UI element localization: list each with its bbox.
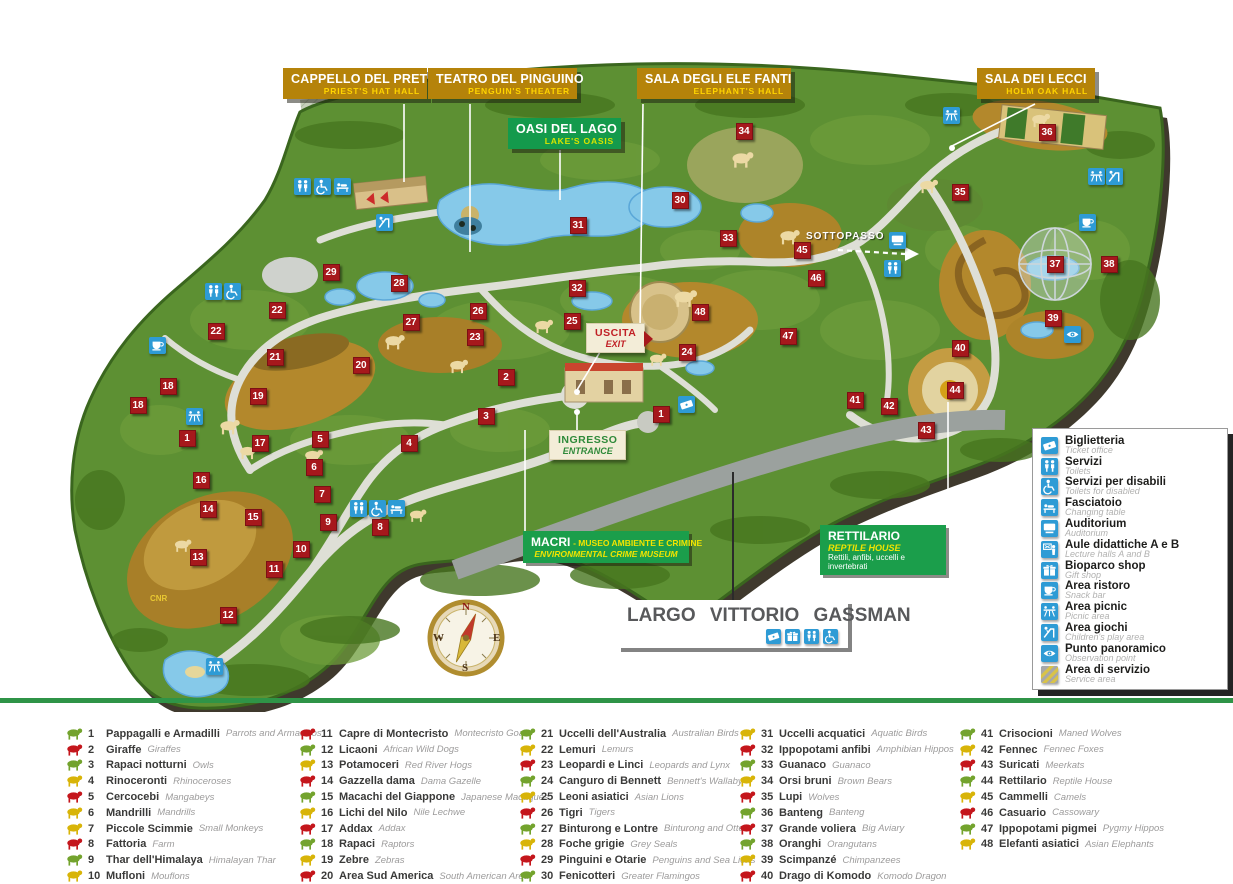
animal-number: 38	[761, 838, 779, 850]
animal-silhouette-icon	[297, 774, 321, 788]
animal-silhouette-icon	[297, 743, 321, 757]
animal-name-en: Chimpanzees	[836, 855, 900, 866]
animal-number: 13	[321, 759, 339, 771]
animal-number: 23	[541, 759, 559, 771]
animal-name-en: Himalayan Thar	[203, 855, 276, 866]
animal-name-it: Orsi bruni	[779, 775, 832, 787]
animal-name-en: South American Area	[433, 871, 529, 882]
animal-number: 30	[541, 870, 559, 882]
map-marker-21: 21	[267, 349, 284, 366]
legend-row-restaurant: Area ristoroSnack bar	[1041, 581, 1221, 602]
animal-name-it: Lupi	[779, 791, 802, 803]
compass-rose: N E S W	[427, 599, 505, 677]
animal-name-en: Brown Bears	[832, 776, 892, 787]
animal-number: 11	[321, 728, 339, 740]
playground-icon	[1106, 168, 1123, 185]
map-marker-35: 35	[952, 184, 969, 201]
toilets-icon	[804, 629, 819, 644]
animal-name-it: Mandrilli	[106, 807, 151, 819]
animal-legend-item-31: 31Uccelli acquaticiAquatic Birds	[737, 726, 954, 742]
animal-name-it: Piccole Scimmie	[106, 823, 193, 835]
hall-label-subtitle: PENGUIN'S THEATER	[436, 86, 570, 96]
animal-name-it: Rinoceronti	[106, 775, 167, 787]
animal-name-it: Fenicotteri	[559, 870, 615, 882]
animal-name-en: Reptile House	[1047, 776, 1113, 787]
animal-name-en: Dama Gazelle	[415, 776, 481, 787]
animal-name-en: Zebras	[369, 855, 405, 866]
animal-legend-item-8: 8FattoriaFarm	[64, 837, 322, 853]
animal-name-it: Fennec	[999, 744, 1038, 756]
animal-name-it: Rapaci notturni	[106, 759, 187, 771]
animal-number: 5	[88, 791, 106, 803]
animal-silhouette-icon	[517, 758, 541, 772]
picnic-icon	[1088, 168, 1105, 185]
compass-north: N	[462, 601, 470, 613]
animal-legend-item-13: 13PotamoceriRed River Hogs	[297, 758, 549, 774]
animal-silhouette-icon	[64, 869, 88, 883]
hall-label-subtitle: PRIEST'S HAT HALL	[291, 86, 420, 96]
map-marker-13: 13	[190, 549, 207, 566]
legend-name-en: Ticket office	[1065, 446, 1124, 455]
map-marker-42: 42	[881, 398, 898, 415]
animal-legend-item-34: 34Orsi bruniBrown Bears	[737, 773, 954, 789]
rettilario-desc: Rettili, anfibi, uccelli e invertebrati	[828, 553, 938, 571]
animal-legend-item-42: 42FennecFennec Foxes	[957, 742, 1164, 758]
animal-legend-item-11: 11Capre di MontecristoMontecristo Goats	[297, 726, 549, 742]
animal-name-it: Uccelli dell'Australia	[559, 728, 666, 740]
animal-name-en: Aquatic Birds	[865, 728, 927, 739]
map-marker-12: 12	[220, 607, 237, 624]
map-marker-43: 43	[918, 422, 935, 439]
animal-number: 20	[321, 870, 339, 882]
map-marker-24: 24	[679, 344, 696, 361]
animal-silhouette-icon	[517, 822, 541, 836]
animal-name-it: Macachi del Giappone	[339, 791, 455, 803]
animal-legend-item-39: 39ScimpanzéChimpanzees	[737, 852, 954, 868]
rettilario-subtitle: REPTILE HOUSE	[828, 543, 938, 553]
animal-silhouette-icon	[64, 743, 88, 757]
changing-icon	[334, 178, 351, 195]
map-marker-15: 15	[245, 509, 262, 526]
animal-silhouette-icon	[957, 758, 981, 772]
animal-legend-item-29: 29Pinguini e OtariePenguins and Sea Lion…	[517, 852, 755, 868]
legend-divider	[0, 698, 1233, 703]
animal-legend-item-20: 20Area Sud AmericaSouth American Area	[297, 868, 549, 884]
animal-number: 6	[88, 807, 106, 819]
animal-silhouette-icon	[737, 790, 761, 804]
map-marker-1: 1	[179, 430, 196, 447]
animal-legend-column-5: 41CrisocioniManed Wolves42FennecFennec F…	[957, 726, 1164, 852]
shop-icon	[785, 629, 800, 644]
animal-legend-item-47: 47Ippopotami pigmeiPygmy Hippos	[957, 821, 1164, 837]
animal-silhouette-icon	[957, 822, 981, 836]
animal-silhouette-icon	[297, 806, 321, 820]
hall-label-title: CAPPELLO DEL PRETE	[291, 72, 420, 86]
animal-number: 34	[761, 775, 779, 787]
animal-name-en: Mangabeys	[159, 792, 214, 803]
animal-legend-item-44: 44RettilarioReptile House	[957, 773, 1164, 789]
animal-name-en: Lemurs	[596, 744, 634, 755]
service-icon	[1041, 666, 1058, 683]
playground-icon	[376, 214, 393, 231]
animal-name-it: Ippopotami anfibi	[779, 744, 871, 756]
animal-silhouette-icon	[64, 790, 88, 804]
macri-subtitle-en: ENVIRONMENTAL CRIME MUSEUM	[531, 549, 681, 559]
hall-label-sala-degli-elefanti: SALA DEGLI ELE FANTIELEPHANT'S HALL	[637, 68, 791, 99]
disabled-icon	[823, 629, 838, 644]
animal-name-it: Crisocioni	[999, 728, 1053, 740]
animal-legend-item-10: 10MufloniMouflons	[64, 868, 322, 884]
lecture-icon	[1041, 541, 1058, 558]
animal-name-it: Leoni asiatici	[559, 791, 629, 803]
legend-name-en: Children's play area	[1065, 633, 1144, 642]
legend-row-playground: Area giochiChildren's play area	[1041, 622, 1221, 643]
animal-silhouette-icon	[517, 853, 541, 867]
macri-title: MACRI	[531, 535, 570, 549]
animal-name-it: Giraffe	[106, 744, 141, 756]
animal-silhouette-icon	[957, 774, 981, 788]
animal-legend-item-45: 45CammelliCamels	[957, 789, 1164, 805]
animal-name-it: Potamoceri	[339, 759, 399, 771]
legend-name-en: Snack bar	[1065, 591, 1130, 600]
entrance-title: INGRESSO	[558, 434, 617, 446]
legend-row-toilets: ServiziToilets	[1041, 456, 1221, 477]
animal-name-en: Owls	[187, 760, 214, 771]
map-marker-32: 32	[569, 280, 586, 297]
map-marker-39: 39	[1045, 310, 1062, 327]
animal-name-en: Big Aviary	[856, 823, 904, 834]
auditorium-icon	[1041, 520, 1058, 537]
animal-name-en: Guanaco	[826, 760, 871, 771]
hall-label-subtitle: HOLM OAK HALL	[985, 86, 1088, 96]
legend-name-en: Observation point	[1065, 654, 1166, 663]
animal-silhouette-icon	[957, 790, 981, 804]
animal-name-en: Giraffes	[141, 744, 180, 755]
animal-name-en: Pygmy Hippos	[1097, 823, 1164, 834]
animal-number: 8	[88, 838, 106, 850]
animal-name-it: Uccelli acquatici	[779, 728, 865, 740]
restaurant-icon	[1079, 214, 1096, 231]
animal-number: 29	[541, 854, 559, 866]
animal-legend-item-2: 2GiraffeGiraffes	[64, 742, 322, 758]
animal-legend-item-17: 17AddaxAddax	[297, 821, 549, 837]
animal-number: 44	[981, 775, 999, 787]
animal-name-it: Thar dell'Himalaya	[106, 854, 203, 866]
animal-number: 18	[321, 838, 339, 850]
animal-number: 46	[981, 807, 999, 819]
map-marker-38: 38	[1101, 256, 1118, 273]
animal-silhouette-icon	[737, 774, 761, 788]
animal-silhouette-icon	[737, 743, 761, 757]
map-marker-45: 45	[794, 242, 811, 259]
hall-label-title: SALA DEGLI ELE FANTI	[645, 72, 784, 86]
animal-number: 41	[981, 728, 999, 740]
playground-icon	[1041, 624, 1058, 641]
animal-name-it: Canguro di Bennett	[559, 775, 661, 787]
compass-west: W	[433, 632, 444, 644]
picnic-icon	[206, 658, 223, 675]
largo-title: LARGO VITTORIO GASSMAN	[627, 605, 838, 627]
legend-name-en: Changing table	[1065, 508, 1126, 517]
animal-legend-item-36: 36BantengBanteng	[737, 805, 954, 821]
zoo-map-page: CAPPELLO DEL PRETEPRIEST'S HAT HALLTEATR…	[0, 0, 1233, 884]
animal-number: 7	[88, 823, 106, 835]
animal-legend-item-33: 33GuanacoGuanaco	[737, 758, 954, 774]
hall-label-title: TEATRO DEL PINGUINO	[436, 72, 570, 86]
animal-silhouette-icon	[517, 790, 541, 804]
animal-number: 25	[541, 791, 559, 803]
animal-name-it: Zebre	[339, 854, 369, 866]
map-marker-37: 37	[1047, 256, 1064, 273]
toilets-icon	[294, 178, 311, 195]
animal-number: 42	[981, 744, 999, 756]
animal-name-it: Gazzella dama	[339, 775, 415, 787]
animal-silhouette-icon	[517, 727, 541, 741]
animal-name-it: Tigri	[559, 807, 583, 819]
legend-row-lecture: Aule didattiche A e BLecture halls A and…	[1041, 539, 1221, 560]
animal-name-it: Binturong e Lontre	[559, 823, 658, 835]
map-marker-17: 17	[252, 435, 269, 452]
animal-legend-item-28: 28Foche grigieGrey Seals	[517, 837, 755, 853]
animal-silhouette-icon	[297, 790, 321, 804]
macri-museum-label: MACRI - MUSEO AMBIENTE E CRIMINE ENVIRON…	[523, 531, 689, 563]
animal-name-it: Pinguini e Otarie	[559, 854, 646, 866]
disabled-icon	[224, 283, 241, 300]
animal-name-en: Tigers	[583, 807, 615, 818]
panoramic-icon	[1064, 326, 1081, 343]
animal-silhouette-icon	[957, 727, 981, 741]
animal-legend-item-40: 40Drago di KomodoKomodo Dragon	[737, 868, 954, 884]
animal-name-en: Leopards and Lynx	[643, 760, 730, 771]
map-marker-31: 31	[570, 217, 587, 234]
animal-number: 26	[541, 807, 559, 819]
legend-row-auditorium: AuditoriumAuditorium	[1041, 518, 1221, 539]
animal-name-it: Licaoni	[339, 744, 378, 756]
hall-label-subtitle: LAKE'S OASIS	[516, 136, 614, 146]
animal-name-en: Grey Seals	[624, 839, 677, 850]
animal-number: 27	[541, 823, 559, 835]
shop-icon	[1041, 562, 1058, 579]
animal-name-it: Fattoria	[106, 838, 146, 850]
map-marker-44: 44	[947, 382, 964, 399]
animal-legend-item-43: 43SuricatiMeerkats	[957, 758, 1164, 774]
animal-number: 47	[981, 823, 999, 835]
legend-name-en: Service area	[1065, 675, 1150, 684]
map-marker-46: 46	[808, 270, 825, 287]
animal-silhouette-icon	[737, 806, 761, 820]
animal-silhouette-icon	[297, 869, 321, 883]
animal-name-en: Bennett's Wallaby	[661, 776, 743, 787]
panoramic-icon	[1041, 645, 1058, 662]
ticket-icon	[1041, 437, 1058, 454]
map-marker-18: 18	[130, 397, 147, 414]
animal-number: 28	[541, 838, 559, 850]
exit-sign: USCITA EXIT	[586, 323, 645, 353]
hall-label-cappello-del-prete: CAPPELLO DEL PRETEPRIEST'S HAT HALL	[283, 68, 427, 99]
animal-silhouette-icon	[297, 837, 321, 851]
hall-label-sala-dei-lecci: SALA DEI LECCIHOLM OAK HALL	[977, 68, 1095, 99]
facilities-legend-panel: BiglietteriaTicket officeServiziToiletsS…	[1032, 428, 1228, 690]
animal-name-it: Scimpanzé	[779, 854, 836, 866]
animal-legend-item-15: 15Macachi del GiapponeJapanese Macaques	[297, 789, 549, 805]
animal-number: 15	[321, 791, 339, 803]
largo-icons	[627, 629, 838, 644]
auditorium-icon	[889, 232, 906, 249]
disabled-icon	[314, 178, 331, 195]
exit-title: USCITA	[595, 327, 636, 339]
animal-name-it: Rapaci	[339, 838, 375, 850]
picnic-icon	[1041, 603, 1058, 620]
toilets-icon	[205, 283, 222, 300]
map-marker-1: 1	[653, 406, 670, 423]
animal-number: 48	[981, 838, 999, 850]
animal-number: 36	[761, 807, 779, 819]
legend-name-en: Lecture halls A and B	[1065, 550, 1179, 559]
animal-number: 3	[88, 759, 106, 771]
map-marker-41: 41	[847, 392, 864, 409]
animal-name-en: African Wild Dogs	[378, 744, 459, 755]
legend-row-service: Area di servizioService area	[1041, 664, 1221, 685]
rettilario-title: RETTILARIO	[828, 529, 938, 543]
animal-legend-item-7: 7Piccole ScimmieSmall Monkeys	[64, 821, 322, 837]
animal-name-it: Oranghi	[779, 838, 821, 850]
legend-row-panoramic: Punto panoramicoObservation point	[1041, 643, 1221, 664]
map-marker-4: 4	[401, 435, 418, 452]
animal-legend-column-2: 11Capre di MontecristoMontecristo Goats1…	[297, 726, 549, 884]
animal-name-it: Cercocebi	[106, 791, 159, 803]
animal-name-it: Rettilario	[999, 775, 1047, 787]
animal-silhouette-icon	[737, 758, 761, 772]
largo-gassman-sign: LARGO VITTORIO GASSMAN	[617, 600, 848, 648]
macri-subtitle-it: - MUSEO AMBIENTE E CRIMINE	[573, 538, 702, 548]
animal-legend-item-22: 22LemuriLemurs	[517, 742, 755, 758]
map-marker-14: 14	[200, 501, 217, 518]
animal-name-it: Banteng	[779, 807, 823, 819]
animal-number: 32	[761, 744, 779, 756]
legend-row-ticket: BiglietteriaTicket office	[1041, 435, 1221, 456]
map-marker-28: 28	[391, 275, 408, 292]
animal-number: 24	[541, 775, 559, 787]
legend-row-picnic: Area picnicPicnic area	[1041, 601, 1221, 622]
legend-row-shop: Bioparco shopGift shop	[1041, 560, 1221, 581]
animal-silhouette-icon	[297, 822, 321, 836]
map-marker-29: 29	[323, 264, 340, 281]
animal-legend-item-21: 21Uccelli dell'AustraliaAustralian Birds	[517, 726, 755, 742]
animal-legend-item-41: 41CrisocioniManed Wolves	[957, 726, 1164, 742]
ticket-icon	[678, 396, 695, 413]
animal-legend-item-12: 12LicaoniAfrican Wild Dogs	[297, 742, 549, 758]
map-marker-2: 2	[498, 369, 515, 386]
hall-label-title: OASI DEL LAGO	[516, 122, 614, 136]
map-marker-11: 11	[266, 561, 283, 578]
picnic-icon	[186, 408, 203, 425]
animal-number: 37	[761, 823, 779, 835]
map-marker-26: 26	[470, 303, 487, 320]
animal-number: 2	[88, 744, 106, 756]
map-marker-34: 34	[736, 123, 753, 140]
animal-legend-item-1: 1Pappagalli e ArmadilliParrots and Armad…	[64, 726, 322, 742]
animal-legend-item-5: 5CercocebiMangabeys	[64, 789, 322, 805]
animal-silhouette-icon	[737, 837, 761, 851]
legend-name-en: Toilets	[1065, 467, 1102, 476]
disabled-icon	[369, 500, 386, 517]
animal-silhouette-icon	[737, 853, 761, 867]
animal-number: 9	[88, 854, 106, 866]
animal-legend-item-46: 46CasuarioCassowary	[957, 805, 1164, 821]
animal-name-en: Fennec Foxes	[1038, 744, 1104, 755]
animal-name-it: Mufloni	[106, 870, 145, 882]
map-marker-23: 23	[467, 329, 484, 346]
animal-name-en: Orangutans	[821, 839, 877, 850]
map-marker-16: 16	[193, 472, 210, 489]
animal-number: 22	[541, 744, 559, 756]
animal-legend-column-3: 21Uccelli dell'AustraliaAustralian Birds…	[517, 726, 755, 884]
animal-silhouette-icon	[64, 806, 88, 820]
animal-name-en: Raptors	[375, 839, 414, 850]
legend-row-changing: FasciatoioChanging table	[1041, 497, 1221, 518]
animal-name-it: Capre di Montecristo	[339, 728, 448, 740]
animal-silhouette-icon	[297, 727, 321, 741]
animal-number: 40	[761, 870, 779, 882]
animal-name-en: Asian Elephants	[1079, 839, 1154, 850]
compass-east: E	[493, 632, 500, 644]
animal-legend-item-18: 18RapaciRaptors	[297, 837, 549, 853]
hall-label-title: SALA DEI LECCI	[985, 72, 1088, 86]
map-marker-40: 40	[952, 340, 969, 357]
animal-legend-column-1: 1Pappagalli e ArmadilliParrots and Armad…	[64, 726, 322, 884]
animal-number: 45	[981, 791, 999, 803]
restaurant-icon	[149, 337, 166, 354]
animal-legend-item-6: 6MandrilliMandrills	[64, 805, 322, 821]
animal-name-en: Rhinoceroses	[167, 776, 231, 787]
map-marker-25: 25	[564, 313, 581, 330]
map-marker-48: 48	[692, 304, 709, 321]
changing-icon	[388, 500, 405, 517]
animal-legend-item-16: 16Lichi del NiloNile Lechwe	[297, 805, 549, 821]
map-marker-36: 36	[1039, 124, 1056, 141]
animal-name-en: Maned Wolves	[1053, 728, 1122, 739]
animal-number: 10	[88, 870, 106, 882]
animal-legend-item-26: 26TigriTigers	[517, 805, 755, 821]
animal-silhouette-icon	[297, 758, 321, 772]
map-marker-3: 3	[478, 408, 495, 425]
restaurant-icon	[1041, 582, 1058, 599]
animal-name-it: Elefanti asiatici	[999, 838, 1079, 850]
animal-name-it: Drago di Komodo	[779, 870, 871, 882]
animal-number: 4	[88, 775, 106, 787]
animal-silhouette-icon	[517, 837, 541, 851]
animal-name-en: Australian Birds	[666, 728, 739, 739]
animal-name-en: Mandrills	[151, 807, 195, 818]
animal-silhouette-icon	[737, 727, 761, 741]
animal-name-it: Suricati	[999, 759, 1039, 771]
map-marker-6: 6	[306, 459, 323, 476]
animal-name-en: Nile Lechwe	[407, 807, 465, 818]
animal-silhouette-icon	[517, 869, 541, 883]
animal-name-en: Amphibian Hippos	[871, 744, 954, 755]
animal-name-en: Banteng	[823, 807, 864, 818]
animal-name-it: Cammelli	[999, 791, 1048, 803]
animal-legend-item-27: 27Binturong e LontreBinturong and Otters	[517, 821, 755, 837]
animal-name-it: Casuario	[999, 807, 1046, 819]
animal-legend-item-38: 38OranghiOrangutans	[737, 837, 954, 853]
animal-name-en: Asian Lions	[629, 792, 684, 803]
animal-name-en: Addax	[373, 823, 406, 834]
legend-name-en: Picnic area	[1065, 612, 1127, 621]
map-marker-30: 30	[672, 192, 689, 209]
rettilario-label: RETTILARIO REPTILE HOUSE Rettili, anfibi…	[820, 525, 946, 575]
animal-silhouette-icon	[957, 743, 981, 757]
